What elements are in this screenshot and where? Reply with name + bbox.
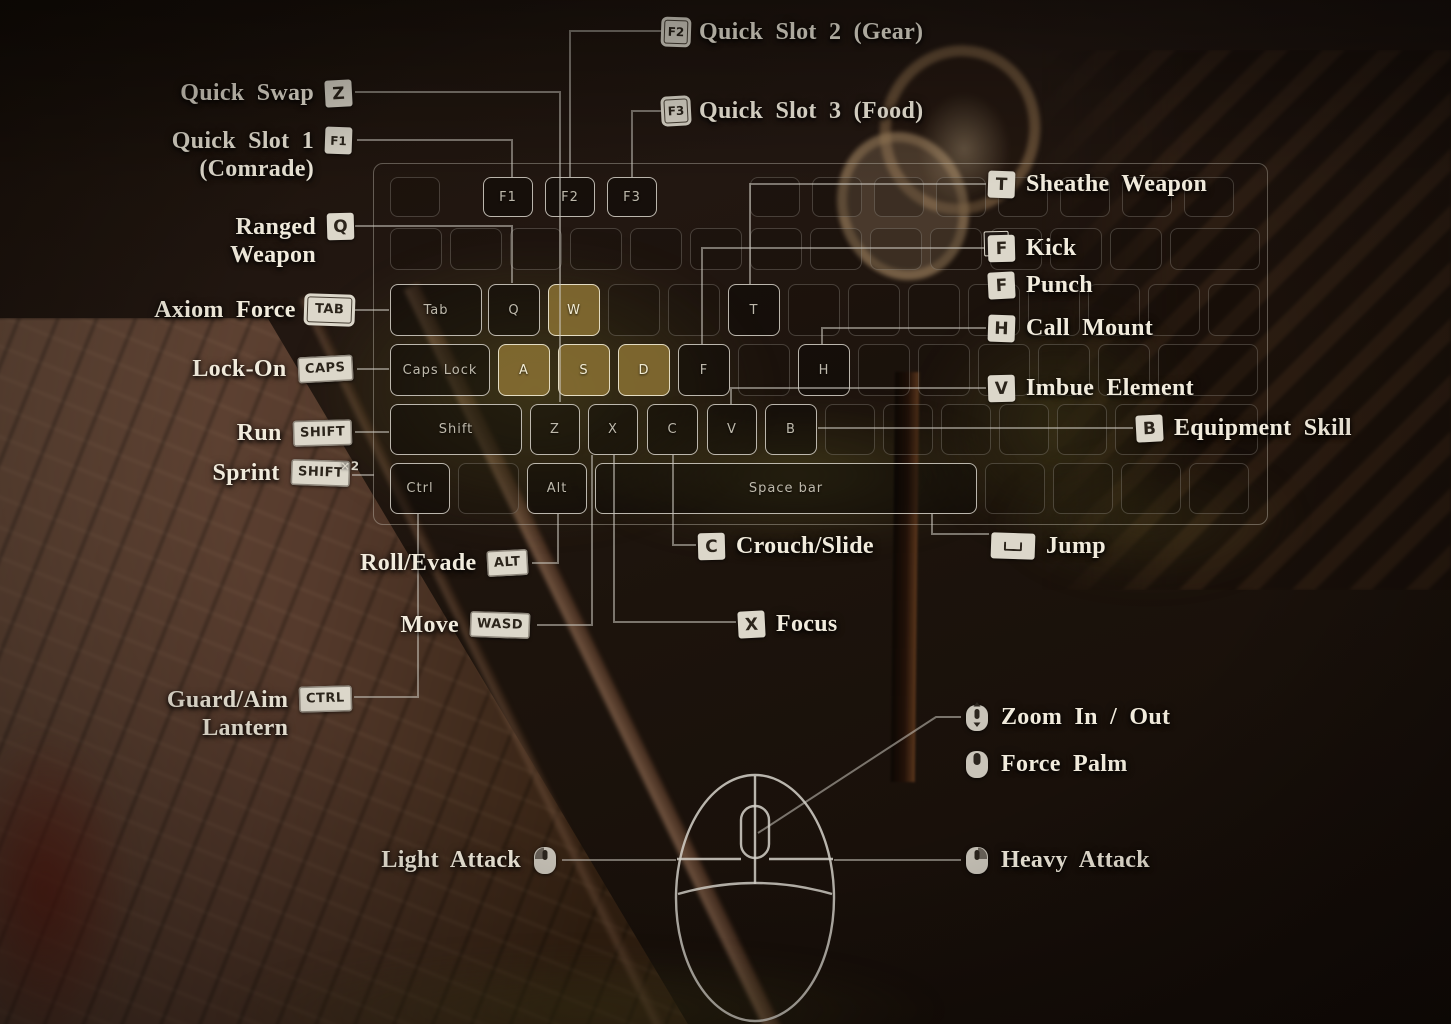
key-a: A bbox=[498, 344, 550, 396]
key-v: V bbox=[707, 404, 757, 455]
key-shift-x2-icon: SHIFT×2 bbox=[290, 459, 350, 487]
key-f1: F1 bbox=[483, 177, 533, 217]
key-f2-icon: F2 bbox=[664, 20, 689, 45]
callout-quick-slot-1: Quick Slot 1 (Comrade) F1 bbox=[162, 127, 352, 183]
key-unlabeled bbox=[1189, 463, 1249, 514]
callout-move: Move WASD bbox=[401, 611, 531, 639]
key-unlabeled bbox=[936, 177, 986, 217]
callout-axiom-force: Axiom Force TAB bbox=[154, 296, 352, 324]
key-f3: F3 bbox=[607, 177, 657, 217]
key-unlabeled bbox=[390, 228, 442, 270]
callout-label: Lock-On bbox=[192, 355, 286, 383]
key-s: S bbox=[558, 344, 610, 396]
key-t-icon: T bbox=[988, 170, 1016, 198]
callout-label: Equipment Skill bbox=[1174, 414, 1352, 442]
key-unlabeled bbox=[390, 177, 440, 217]
key-q: Q bbox=[488, 284, 540, 336]
mouse-outline bbox=[676, 775, 834, 1021]
key-shift-icon: SHIFT bbox=[292, 419, 352, 447]
key-unlabeled bbox=[608, 284, 660, 336]
key-w: W bbox=[548, 284, 600, 336]
callout-label: Light Attack bbox=[381, 846, 521, 874]
callout-label: Sheathe Weapon bbox=[1026, 170, 1207, 198]
key-unlabeled bbox=[510, 228, 562, 270]
callout-label: Axiom Force bbox=[154, 296, 295, 324]
key-f2: F2 bbox=[545, 177, 595, 217]
callout-force-palm: Force Palm bbox=[964, 749, 1128, 779]
key-t: T bbox=[728, 284, 780, 336]
callout-jump: Jump bbox=[991, 532, 1106, 560]
key-unlabeled bbox=[985, 463, 1045, 514]
controls-overlay-screen: F1F2F3TabQWTCaps LockASDFHShiftZXCVBCtrl… bbox=[0, 0, 1451, 1024]
callout-heavy-attack: Heavy Attack bbox=[964, 845, 1150, 875]
key-ctrl-icon: CTRL bbox=[299, 685, 352, 712]
callout-guard-aim-lantern: Guard/Aim Lantern CTRL bbox=[152, 686, 352, 742]
key-caps-icon: CAPS bbox=[297, 355, 353, 384]
key-unlabeled bbox=[883, 404, 933, 455]
key-unlabeled bbox=[750, 177, 800, 217]
key-c-icon: C bbox=[698, 532, 726, 560]
key-b: B bbox=[765, 404, 817, 455]
key-unlabeled bbox=[810, 228, 862, 270]
callout-light-attack: Light Attack bbox=[381, 845, 558, 875]
key-q-icon: Q bbox=[327, 213, 355, 241]
key-unlabeled bbox=[450, 228, 502, 270]
callout-ranged-weapon: Ranged Weapon Q bbox=[210, 213, 354, 269]
callout-quick-slot-3: F3 Quick Slot 3 (Food) bbox=[664, 97, 923, 125]
key-unlabeled bbox=[1053, 463, 1113, 514]
callout-focus: X Focus bbox=[738, 610, 838, 638]
callout-label: Crouch/Slide bbox=[736, 532, 874, 560]
key-b-icon: B bbox=[1135, 414, 1163, 442]
callout-sprint: Sprint SHIFT×2 bbox=[213, 459, 350, 487]
callout-equipment-skill: B Equipment Skill bbox=[1136, 414, 1352, 442]
key-unlabeled bbox=[668, 284, 720, 336]
callout-punch: F Punch bbox=[988, 271, 1093, 299]
key-unlabeled bbox=[812, 177, 862, 217]
key-f-double-tap-icon: F bbox=[988, 234, 1016, 262]
callout-label: Quick Slot 1 (Comrade) bbox=[162, 127, 314, 183]
callout-label: Heavy Attack bbox=[1001, 846, 1150, 874]
key-alt: Alt bbox=[527, 463, 587, 514]
callout-quick-slot-2: F2 Quick Slot 2 (Gear) bbox=[664, 18, 923, 46]
callout-label: Guard/Aim Lantern bbox=[152, 686, 288, 742]
key-shift: Shift bbox=[390, 404, 522, 455]
callout-zoom-in-out: Zoom In / Out bbox=[964, 702, 1170, 732]
key-wasd-icon: WASD bbox=[470, 611, 531, 639]
callout-sheathe-weapon: T Sheathe Weapon bbox=[988, 170, 1207, 198]
key-h: H bbox=[798, 344, 850, 396]
key-unlabeled bbox=[858, 344, 910, 396]
callout-label: Roll/Evade bbox=[360, 549, 476, 577]
callout-label: Quick Slot 3 (Food) bbox=[699, 97, 923, 125]
callout-quick-swap: Quick Swap Z bbox=[180, 79, 352, 107]
callout-label: Zoom In / Out bbox=[1001, 703, 1170, 731]
callout-label: Quick Slot 2 (Gear) bbox=[699, 18, 923, 46]
key-unlabeled bbox=[458, 463, 519, 514]
callout-label: Force Palm bbox=[1001, 750, 1128, 778]
key-d: D bbox=[618, 344, 670, 396]
callout-imbue-element: V Imbue Element bbox=[988, 374, 1194, 402]
callout-label: Ranged Weapon bbox=[210, 213, 316, 269]
key-h-icon: H bbox=[988, 314, 1016, 342]
background-grass bbox=[220, 950, 940, 1024]
callout-label: Quick Swap bbox=[180, 79, 314, 107]
key-unlabeled bbox=[630, 228, 682, 270]
callout-crouch-slide: C Crouch/Slide bbox=[698, 532, 874, 560]
callout-call-mount: H Call Mount bbox=[988, 314, 1153, 342]
key-c: C bbox=[647, 404, 698, 455]
callout-label: Call Mount bbox=[1026, 314, 1153, 342]
key-unlabeled bbox=[848, 284, 900, 336]
key-unlabeled bbox=[874, 177, 924, 217]
key-unlabeled bbox=[750, 228, 802, 270]
key-unlabeled bbox=[1170, 228, 1260, 270]
key-unlabeled bbox=[738, 344, 790, 396]
callout-label: Punch bbox=[1026, 271, 1093, 299]
key-space: Space bar bbox=[595, 463, 977, 514]
key-caps: Caps Lock bbox=[390, 344, 490, 396]
callout-label: Run bbox=[237, 419, 282, 447]
callout-roll-evade: Roll/Evade ALT bbox=[360, 549, 528, 577]
key-unlabeled bbox=[918, 344, 970, 396]
key-z: Z bbox=[530, 404, 580, 455]
callout-label: Jump bbox=[1046, 532, 1106, 560]
background-figure bbox=[0, 730, 130, 1024]
key-f: F bbox=[678, 344, 730, 396]
key-unlabeled bbox=[690, 228, 742, 270]
spacebar-icon bbox=[991, 532, 1036, 560]
callout-kick: F Kick bbox=[988, 234, 1077, 262]
callout-label: Sprint bbox=[213, 459, 280, 487]
callout-label: Imbue Element bbox=[1026, 374, 1194, 402]
key-f3-icon: F3 bbox=[663, 98, 688, 123]
callout-label: Focus bbox=[776, 610, 838, 638]
callout-run: Run SHIFT bbox=[237, 419, 352, 447]
mouse-right-click-icon bbox=[964, 845, 990, 875]
key-tab: Tab bbox=[390, 284, 482, 336]
key-ctrl: Ctrl bbox=[390, 463, 450, 514]
mouse-scroll-icon bbox=[964, 702, 990, 732]
key-unlabeled bbox=[1208, 284, 1260, 336]
key-unlabeled bbox=[1110, 228, 1162, 270]
key-x: X bbox=[588, 404, 638, 455]
key-unlabeled bbox=[941, 404, 991, 455]
mouse-left-click-icon bbox=[532, 845, 558, 875]
mouse-middle-click-icon bbox=[964, 749, 990, 779]
key-unlabeled bbox=[825, 404, 875, 455]
key-unlabeled bbox=[1057, 404, 1107, 455]
key-unlabeled bbox=[999, 404, 1049, 455]
key-unlabeled bbox=[788, 284, 840, 336]
callout-lock-on: Lock-On CAPS bbox=[192, 355, 352, 383]
callout-label: Move bbox=[401, 611, 460, 639]
key-tab-icon: TAB bbox=[306, 296, 352, 324]
key-unlabeled bbox=[570, 228, 622, 270]
key-z-icon: Z bbox=[324, 79, 352, 107]
key-f1-icon: F1 bbox=[325, 127, 353, 155]
key-v-icon: V bbox=[988, 374, 1016, 402]
key-unlabeled bbox=[908, 284, 960, 336]
key-unlabeled bbox=[1121, 463, 1181, 514]
key-unlabeled bbox=[930, 228, 982, 270]
key-unlabeled bbox=[1148, 284, 1200, 336]
key-unlabeled bbox=[870, 228, 922, 270]
callout-label: Kick bbox=[1026, 234, 1077, 262]
key-f-icon: F bbox=[987, 271, 1015, 299]
key-alt-icon: ALT bbox=[487, 549, 529, 577]
key-x-icon: X bbox=[737, 610, 765, 638]
